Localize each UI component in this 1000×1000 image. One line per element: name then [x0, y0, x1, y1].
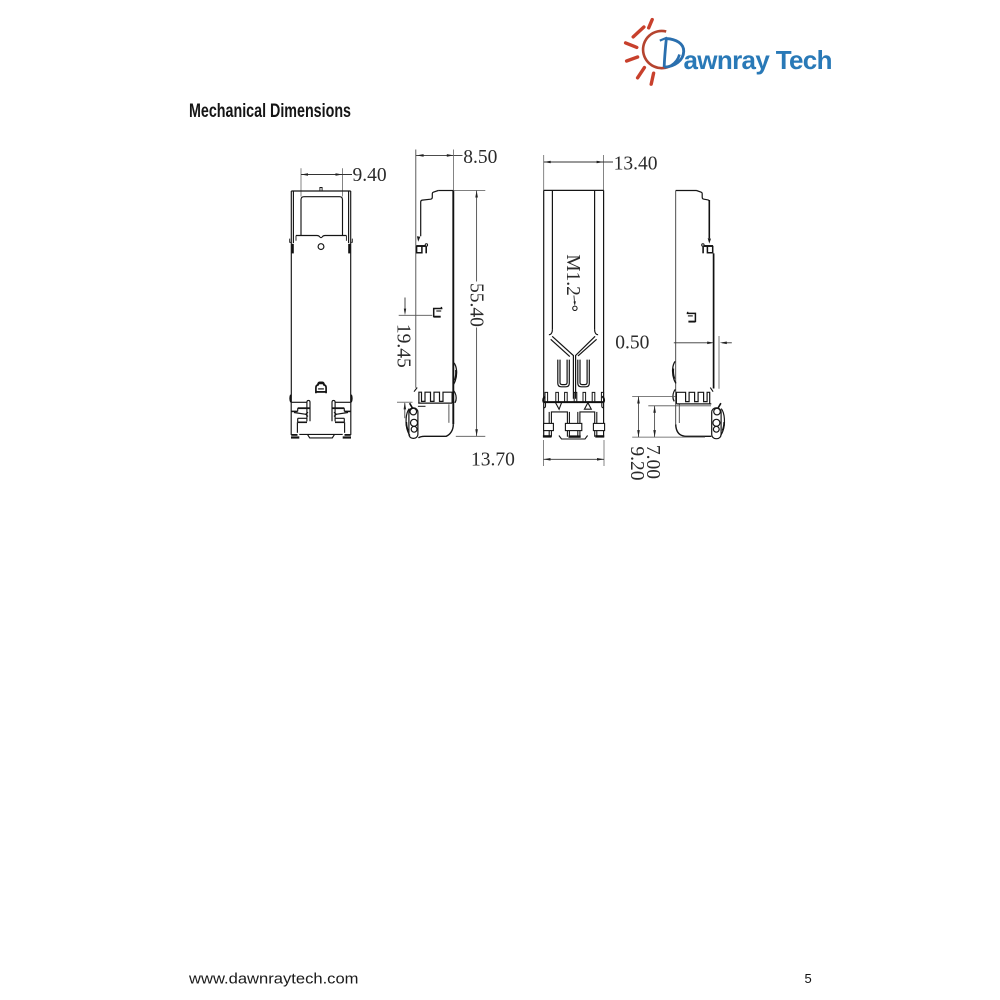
svg-text:8.50: 8.50 [463, 147, 497, 168]
svg-text:55.40: 55.40 [465, 283, 486, 327]
svg-text:www.dawnraytech.com: www.dawnraytech.com [188, 971, 359, 988]
svg-text:Mechanical Dimensions: Mechanical Dimensions [189, 101, 351, 122]
svg-text:13.70: 13.70 [471, 450, 515, 471]
svg-text:5: 5 [805, 971, 812, 986]
svg-text:9.40: 9.40 [353, 165, 387, 186]
svg-text:19.45: 19.45 [392, 324, 413, 368]
svg-text:M1.2: M1.2 [562, 254, 583, 296]
svg-text:7.00: 7.00 [642, 445, 663, 479]
svg-text:0.50: 0.50 [615, 333, 649, 354]
svg-text:13.40: 13.40 [614, 153, 658, 174]
svg-text:awnray Tech: awnray Tech [684, 45, 833, 75]
